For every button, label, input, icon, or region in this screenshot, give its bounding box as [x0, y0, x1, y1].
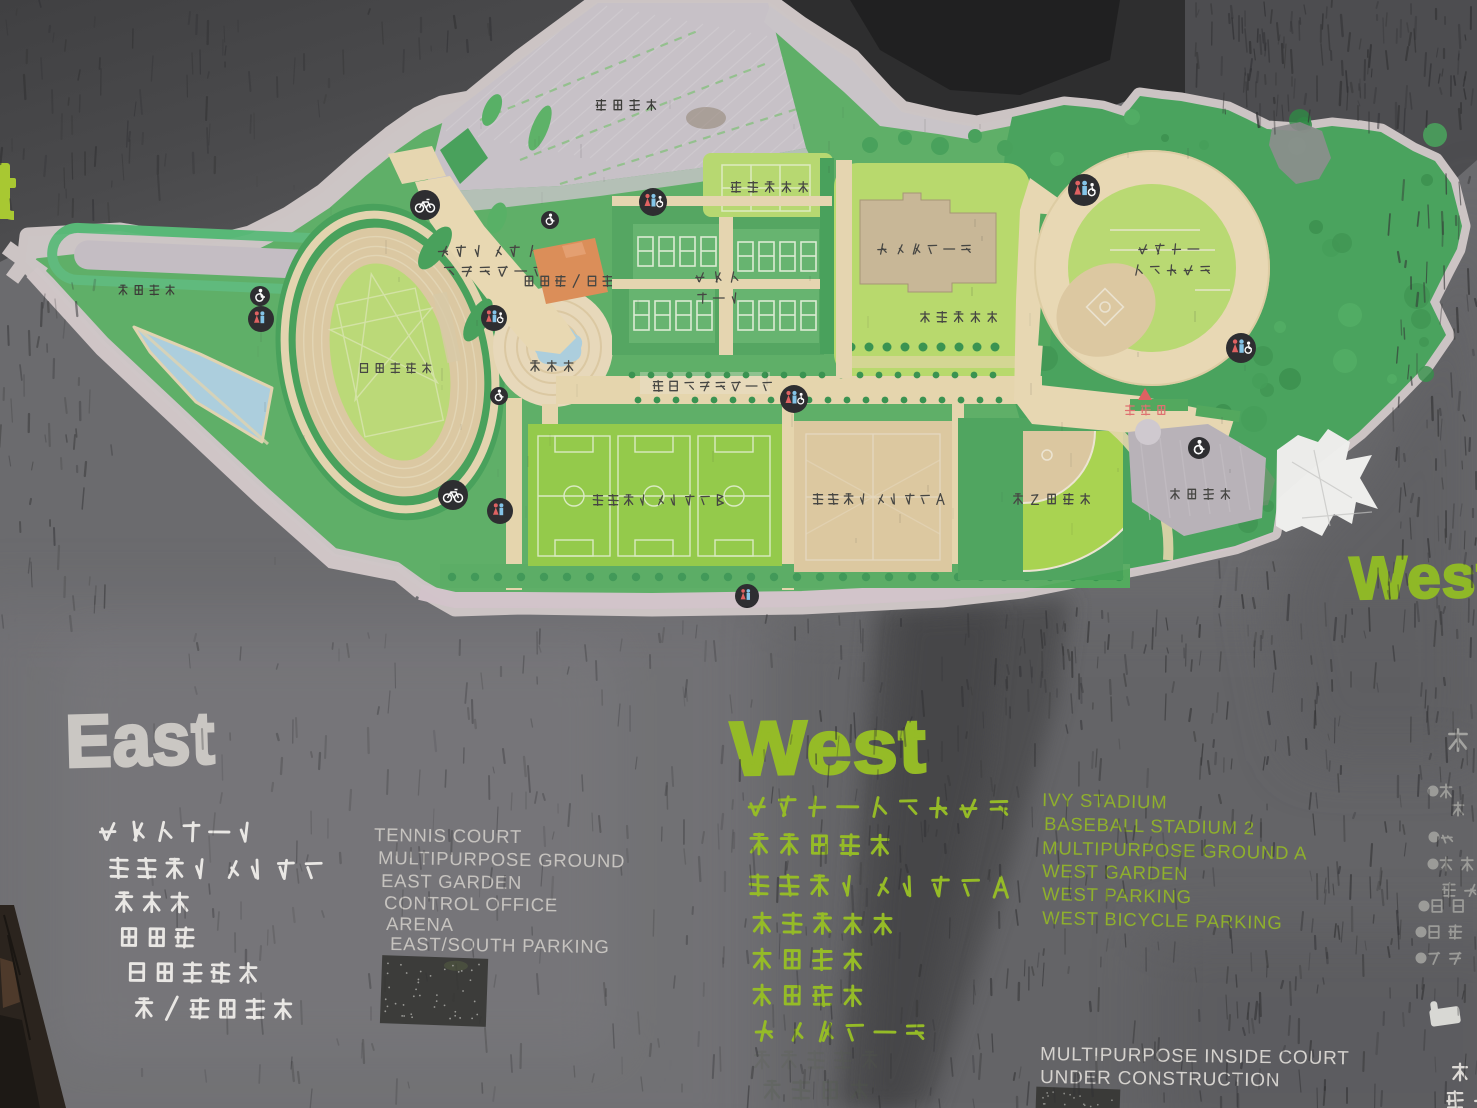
svg-text:West: West	[1349, 542, 1477, 612]
svg-text:MULTIPURPOSE INSIDE COURT: MULTIPURPOSE INSIDE COURT	[1040, 1044, 1350, 1069]
svg-text:EAST/SOUTH PARKING: EAST/SOUTH PARKING	[390, 933, 610, 957]
svg-text:EAST GARDEN: EAST GARDEN	[381, 870, 522, 893]
svg-text:UNDER CONSTRUCTION: UNDER CONSTRUCTION	[1040, 1067, 1281, 1091]
svg-text:East: East	[64, 696, 216, 783]
svg-text:WEST PARKING: WEST PARKING	[1042, 883, 1192, 907]
svg-text:ARENA: ARENA	[386, 913, 454, 935]
svg-text:WEST GARDEN: WEST GARDEN	[1042, 860, 1189, 884]
svg-text:CONTROL OFFICE: CONTROL OFFICE	[384, 892, 558, 915]
svg-text:MULTIPURPOSE GROUND: MULTIPURPOSE GROUND	[378, 847, 625, 871]
svg-text:BASEBALL STADIUM 2: BASEBALL STADIUM 2	[1044, 813, 1255, 838]
svg-text:IVY STADIUM: IVY STADIUM	[1042, 789, 1168, 813]
